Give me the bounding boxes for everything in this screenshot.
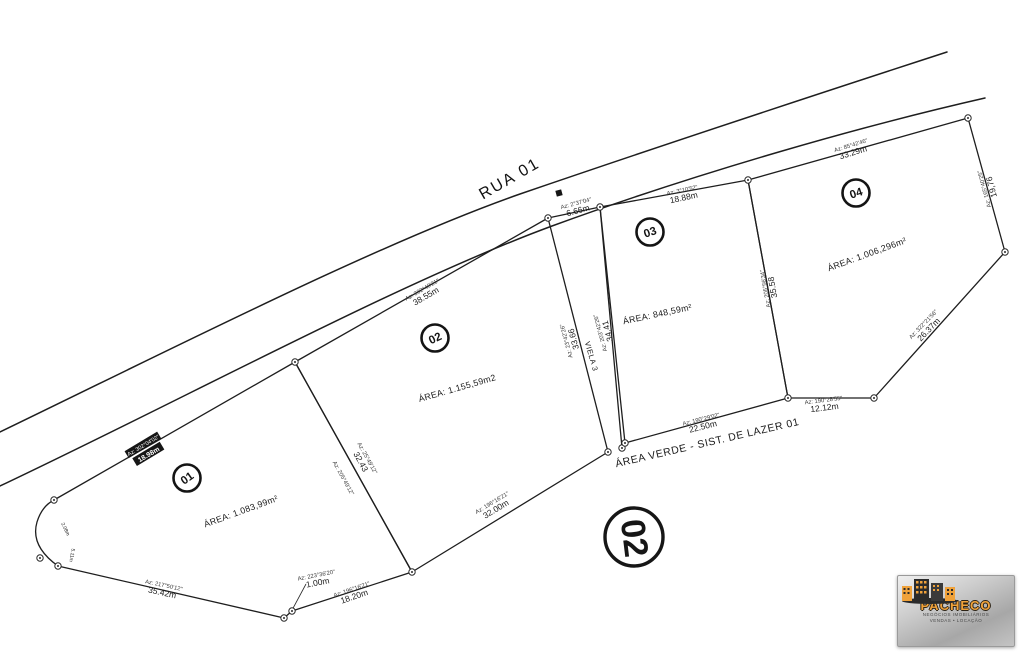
vertex-marker-dot — [39, 557, 41, 559]
lot-number-text: 04 — [848, 186, 864, 202]
svg-text:2.08m: 2.08m — [59, 522, 70, 537]
dimension-label: Az: 223°36'20"1.00m — [297, 569, 337, 590]
dimension-label: Az: 3°10'52"18.88m — [666, 185, 700, 206]
vertex-marker-dot — [411, 571, 413, 573]
dimension-label: Az: 190°29'02"22.50m — [682, 413, 722, 436]
lot-03-boundary — [600, 180, 788, 443]
lot-area-label: ÁREA: 848,59m² — [622, 302, 693, 326]
lot-02-boundary — [295, 218, 608, 572]
lot-number-text: 03 — [642, 225, 658, 240]
buildings-icon — [898, 576, 962, 604]
company-logo: PACHECO NEGÓCIOS IMOBILIÁRIOS VENDAS • L… — [897, 575, 1015, 647]
dimension-label: 2.08m — [59, 522, 70, 537]
lot-area-label: ÁREA: 1.155,59m2 — [417, 372, 497, 404]
vertex-marker-dot — [747, 179, 749, 181]
vertex-markers — [37, 115, 1008, 621]
block-number-text: 02 — [613, 517, 655, 559]
vertex-marker-dot — [621, 447, 623, 449]
lot-area-label: ÁREA: 1.006,296m² — [826, 235, 908, 273]
vertex-marker-dot — [787, 397, 789, 399]
survey-point-marker — [555, 189, 562, 196]
dimension-label: Az: 302°04'02"18.98m — [125, 432, 168, 468]
road-inner-edge — [0, 98, 985, 486]
vertex-marker-dot — [294, 361, 296, 363]
dimension-label: 5.11m — [67, 548, 75, 562]
lot-labels: 01ÁREA: 1.083,99m²02ÁREA: 1.155,59m203ÁR… — [174, 180, 908, 530]
lot-01-boundary — [36, 362, 412, 618]
svg-text:5.11m: 5.11m — [67, 548, 75, 562]
vertex-marker-dot — [547, 217, 549, 219]
lot-number-badge: 03 — [637, 219, 664, 246]
lot-04-boundary — [748, 118, 1005, 398]
vertex-marker-dot — [283, 617, 285, 619]
lot-area-label: ÁREA: 1.083,99m² — [203, 493, 280, 529]
vertex-marker-dot — [57, 565, 59, 567]
lot-number-text: 02 — [427, 331, 444, 347]
dimension-label: Az: 85°42'46"33.29m — [834, 138, 872, 162]
dimension-label: Az: 25°49'12"32.43 — [348, 442, 378, 479]
vertex-marker-dot — [1004, 251, 1006, 253]
lot-number-badge: 04 — [843, 180, 870, 207]
road-outer-edge — [0, 52, 947, 432]
vertex-marker-dot — [53, 499, 55, 501]
dimension-label: Az: 205°49'12" — [331, 460, 355, 496]
svg-text:12.12m: 12.12m — [810, 401, 839, 414]
vertex-marker-dot — [291, 610, 293, 612]
street-name-label: RUA 01 — [476, 155, 543, 203]
viela-label: VIELA 3 — [583, 340, 600, 372]
svg-text:Az: 205°49'12": Az: 205°49'12" — [331, 460, 355, 496]
lot-number-text: 01 — [179, 470, 197, 488]
dimension-label: Az: 217°50'12"35.42m — [143, 579, 183, 601]
vertex-marker-dot — [873, 397, 875, 399]
vertex-marker-dot — [607, 451, 609, 453]
dimension-label: Az: 165°40'25"19,76 — [977, 167, 1001, 208]
vertex-marker-dot — [599, 206, 601, 208]
logo-tagline-2: VENDAS • LOCAÇÃO — [930, 618, 983, 624]
dimension-label: Az: 196°16'21"18.20m — [333, 581, 374, 607]
survey-plan-canvas: RUA 01 ÁREA VERDE - SIST. DE LAZER 01 VI… — [0, 0, 1024, 657]
vertex-marker-dot — [624, 442, 626, 444]
dimension-labels: Az: 302°40'21"38.55mAz: 302°04'02"18.98m… — [59, 138, 1001, 607]
dimension-label: Az: 196°16'21"32.00m — [475, 491, 515, 523]
dimension-label: Az: 302°40'21"38.55m — [405, 278, 445, 310]
dimension-label: Az: 2°37'04"6.66m — [560, 197, 594, 219]
plan-drawing: RUA 01 ÁREA VERDE - SIST. DE LAZER 01 VI… — [0, 0, 1024, 657]
lot-number-badge: 02 — [422, 325, 449, 352]
dimension-label: Az: 205°56'34"35.58 — [760, 268, 781, 308]
block-number-badge: 02 — [605, 508, 663, 566]
dimension-label: Az: 322°21'56"26.37m — [908, 309, 945, 346]
lot-number-badge: 01 — [174, 465, 201, 492]
vertex-marker-dot — [967, 117, 969, 119]
